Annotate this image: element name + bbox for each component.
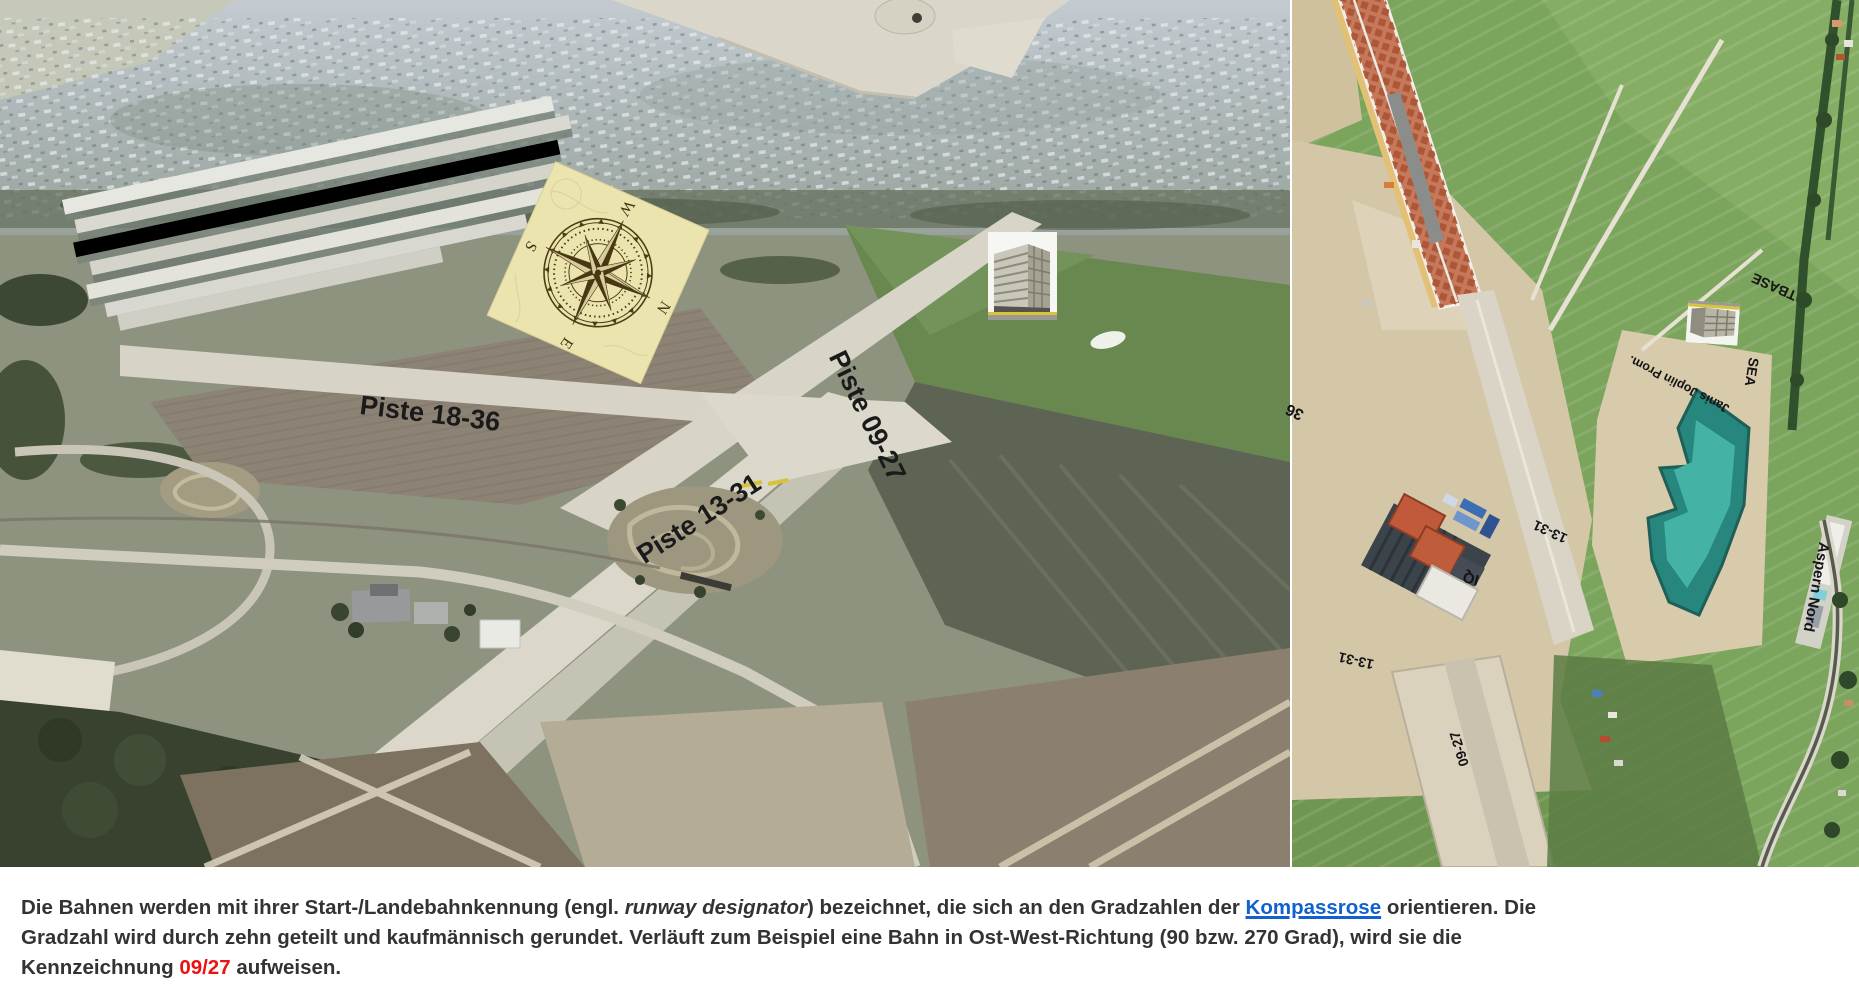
caption-highlight-09-27: 09/27 xyxy=(179,956,230,979)
building-photo-overlay-flipped xyxy=(1685,295,1740,346)
houses-top-right xyxy=(1832,20,1842,27)
caption-text: Kennzeichnung xyxy=(21,956,179,979)
caption-line-2: Gradzahl wird durch zehn geteilt und kau… xyxy=(21,923,1846,953)
kompassrose-link[interactable]: Kompassrose xyxy=(1246,896,1382,919)
caption-text: orientieren. Die xyxy=(1381,896,1536,919)
caption-line-1: Die Bahnen werden mit ihrer Start-/Lande… xyxy=(21,893,1846,923)
left-photo-scene xyxy=(0,0,1290,867)
left-aerial-photo xyxy=(0,0,1290,867)
caption-line-3: Kennzeichnung 09/27 aufweisen. xyxy=(21,953,1846,983)
wheel-hub xyxy=(912,13,922,23)
right-aerial-photo xyxy=(1292,0,1859,867)
figure-runway-designators: W N E S xyxy=(0,0,1859,990)
caption: Die Bahnen werden mit ihrer Start-/Lande… xyxy=(21,893,1846,983)
right-photo-scene xyxy=(1292,0,1859,867)
caption-text: aufweisen. xyxy=(231,956,342,979)
caption-italic-runway-designator: runway designator xyxy=(625,896,807,919)
building-photo-overlay xyxy=(988,232,1057,325)
caption-text: ) bezeichnet, die sich an den Gradzahlen… xyxy=(807,896,1246,919)
caption-text: Die Bahnen werden mit ihrer Start-/Lande… xyxy=(21,896,625,919)
